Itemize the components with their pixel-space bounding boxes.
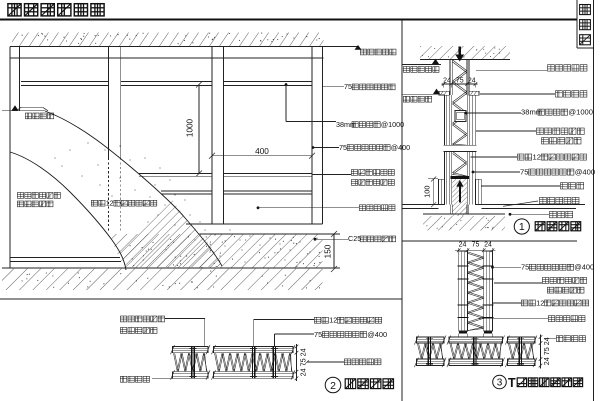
svg-text:@1000: @1000 [568,108,593,117]
svg-text:24: 24 [484,242,492,249]
svg-text:C25: C25 [348,234,361,243]
svg-text:75: 75 [472,242,480,249]
svg-text:150: 150 [323,244,332,258]
svg-text:12: 12 [533,152,541,161]
svg-text:@400: @400 [575,167,595,176]
svg-text:1000: 1000 [185,118,194,137]
svg-text:3: 3 [497,378,503,389]
svg-text:75: 75 [521,263,529,272]
svg-text:1: 1 [519,221,525,233]
svg-text:75: 75 [344,82,352,91]
svg-text:24 75 24: 24 75 24 [299,348,308,376]
svg-text:100: 100 [422,186,431,198]
svg-text:75: 75 [314,330,322,339]
svg-text:T: T [508,376,516,390]
svg-text:400: 400 [255,147,269,156]
svg-text:75: 75 [520,167,528,176]
svg-text:75: 75 [339,143,347,152]
svg-text:24: 24 [459,242,467,249]
svg-text:12: 12 [329,316,337,325]
svg-text:24: 24 [468,77,476,84]
svg-text:75: 75 [456,77,464,84]
svg-text:12: 12 [536,298,544,307]
svg-text:@400: @400 [367,330,387,339]
svg-text:2: 2 [330,380,336,392]
svg-text:@1000: @1000 [381,120,404,129]
svg-text:12: 12 [106,199,114,208]
svg-text:24 75 24: 24 75 24 [542,337,551,365]
svg-text:@400: @400 [391,143,410,152]
svg-text:@400: @400 [574,263,594,272]
